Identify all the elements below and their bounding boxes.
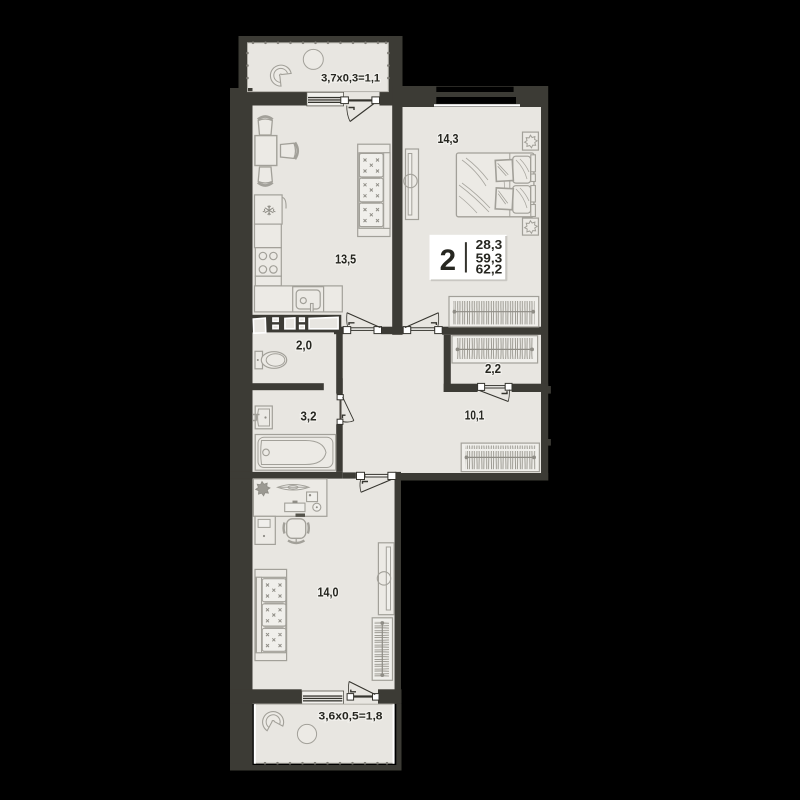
svg-text:2: 2 bbox=[440, 244, 456, 277]
svg-text:14,0: 14,0 bbox=[318, 584, 339, 599]
svg-text:10,1: 10,1 bbox=[465, 408, 485, 423]
svg-text:2,2: 2,2 bbox=[485, 361, 501, 376]
svg-text:3,7x0,3=1,1: 3,7x0,3=1,1 bbox=[321, 72, 380, 84]
svg-text:13,5: 13,5 bbox=[335, 252, 356, 267]
svg-text:2,0: 2,0 bbox=[296, 337, 312, 352]
svg-text:3,2: 3,2 bbox=[301, 409, 317, 424]
svg-text:62,2: 62,2 bbox=[476, 263, 503, 277]
svg-text:14,3: 14,3 bbox=[438, 131, 459, 146]
svg-text:3,6x0,5=1,8: 3,6x0,5=1,8 bbox=[319, 711, 383, 723]
svg-text:28,3: 28,3 bbox=[476, 238, 503, 252]
